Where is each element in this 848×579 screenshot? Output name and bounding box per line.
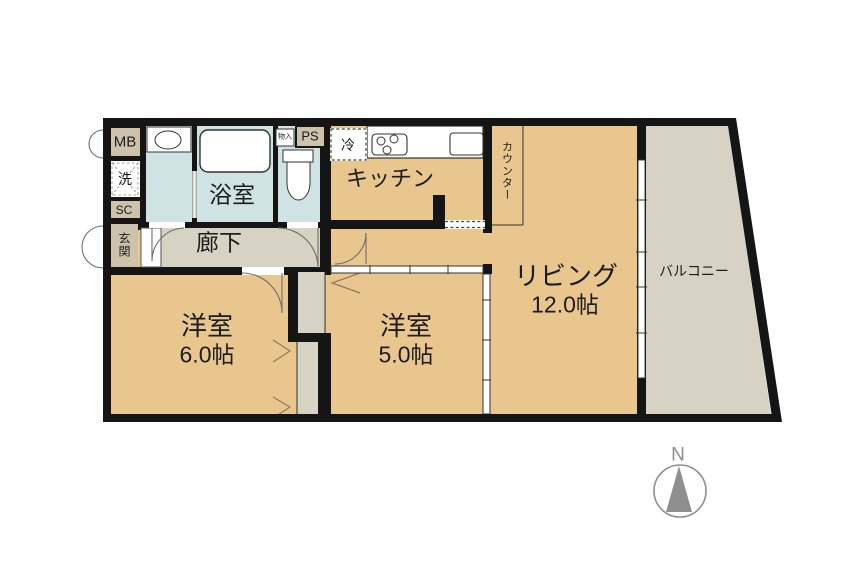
laundry-label: 洗 <box>118 172 132 186</box>
meter-box-door-arc <box>89 130 103 158</box>
entrance-step <box>141 228 161 267</box>
meter-box-label: MB <box>114 135 137 150</box>
kitchen-label: キッチン <box>346 168 434 190</box>
bathtub <box>200 130 270 172</box>
bath-label: 浴室 <box>209 184 255 207</box>
closet-lower <box>297 342 318 414</box>
entrance-label: 玄関 <box>118 232 130 258</box>
wash-basin <box>155 131 181 149</box>
refrigerator-label: 冷 <box>341 138 355 152</box>
storage-label: 物入 <box>278 134 292 141</box>
bedroom6-size: 6.0帖 <box>180 344 235 367</box>
bedroom5-label: 洋室 <box>380 313 432 339</box>
bedroom5-size: 5.0帖 <box>379 344 434 367</box>
counter-label: カウンター <box>501 141 512 201</box>
pipe-space-label: PS <box>301 130 318 143</box>
balcony-window <box>638 160 645 378</box>
bedroom6-label: 洋室 <box>181 313 233 339</box>
balcony-label: バルコニー <box>659 264 729 278</box>
floor-plan-drawing <box>0 0 848 579</box>
toilet-tank <box>283 150 313 162</box>
partition-right <box>483 274 490 414</box>
entrance-door-arc <box>82 226 103 268</box>
north-label: N <box>671 446 685 465</box>
partition-top <box>331 266 483 273</box>
shoe-closet-label: SC <box>116 204 133 216</box>
compass-icon <box>654 465 706 517</box>
kitchen-sink <box>450 133 483 155</box>
living-label: リビング <box>514 263 618 289</box>
hallway-label: 廊下 <box>196 232 242 255</box>
living-size: 12.0帖 <box>531 294 599 317</box>
closet-upper <box>298 272 325 333</box>
stove <box>372 134 407 155</box>
toilet-bowl <box>287 162 310 200</box>
hallway-floor <box>161 228 331 267</box>
floor-plan: MB 洗 SC 玄関 浴室 物入 PS 冷 キッチン カウンター 廊下 リビング… <box>0 0 848 579</box>
